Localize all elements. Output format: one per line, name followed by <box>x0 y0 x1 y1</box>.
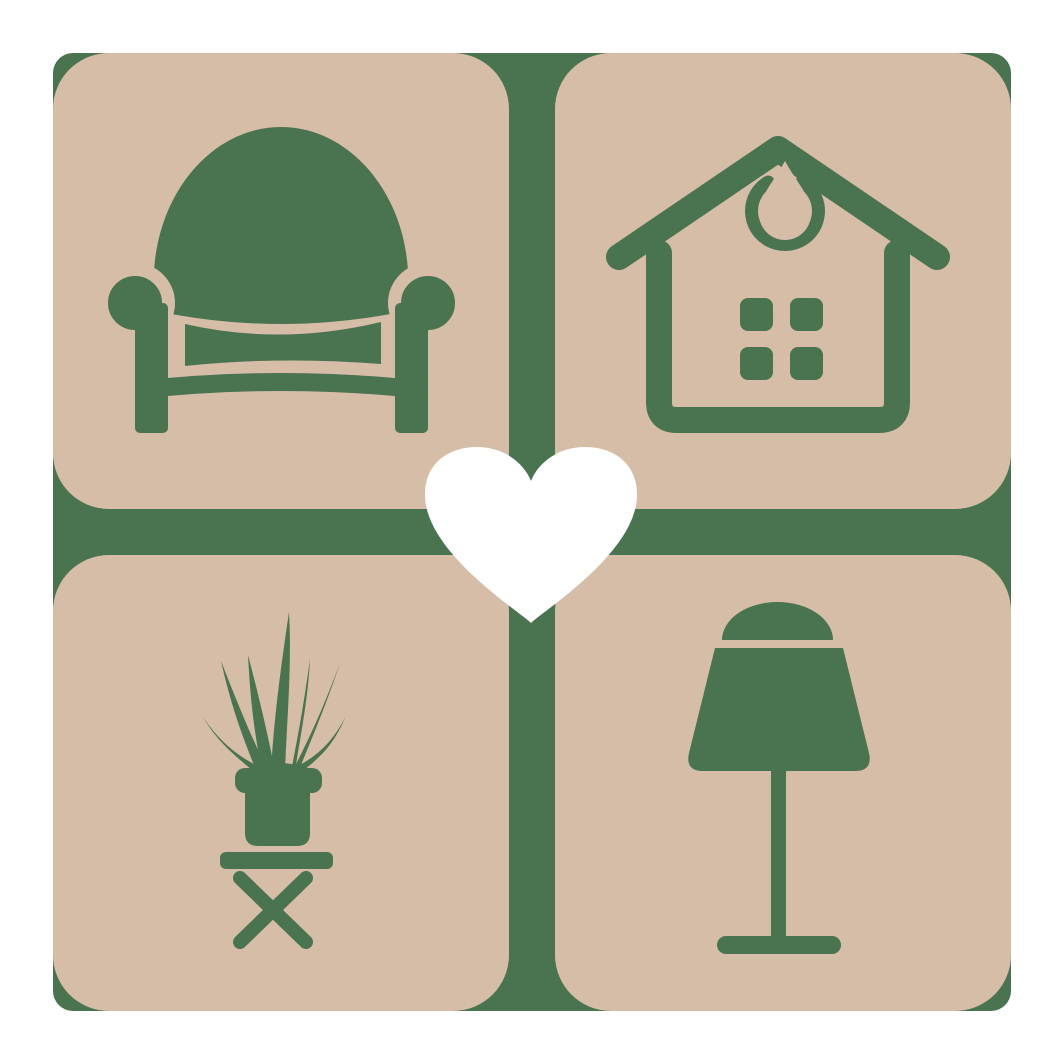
lamp-shade <box>688 648 869 771</box>
armchair-left-leg <box>135 303 168 433</box>
tile-top-right <box>555 53 1011 509</box>
tile-background <box>555 53 1011 509</box>
tile-top-left <box>53 53 509 509</box>
armchair-right-leg <box>395 303 428 433</box>
logo-canvas <box>0 0 1063 1063</box>
window-pane <box>790 298 823 331</box>
pot-rim <box>235 768 322 793</box>
lamp-base <box>717 936 841 954</box>
table-top <box>220 852 333 869</box>
window-pane <box>740 347 773 380</box>
tile-bottom-left <box>53 555 509 1011</box>
tile-bottom-right <box>555 555 1011 1011</box>
window-pane <box>790 347 823 380</box>
home-decor-logo <box>0 0 1063 1063</box>
pot-body <box>245 793 310 846</box>
window-pane <box>740 298 773 331</box>
lamp-stem <box>771 771 786 941</box>
